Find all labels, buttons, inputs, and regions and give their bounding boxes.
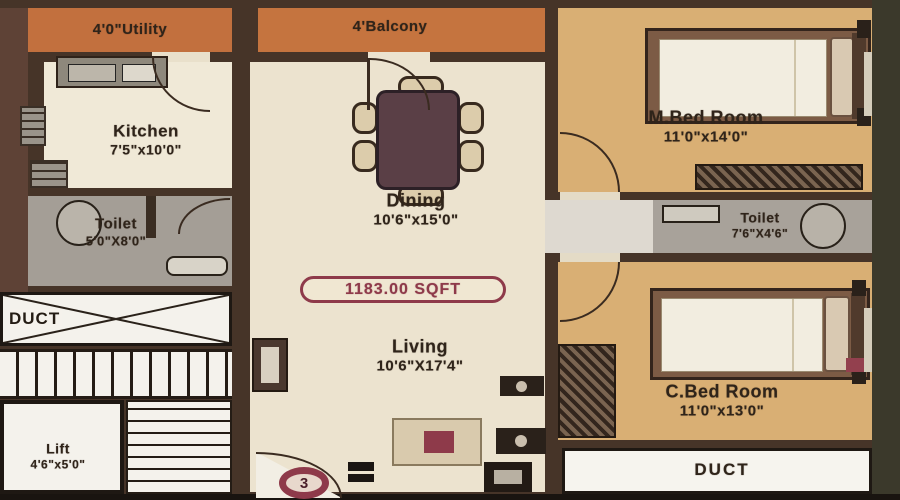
- toilet-left-label: Toilet 5'0"X8'0": [86, 215, 147, 248]
- main-door-mark: [348, 474, 374, 482]
- speaker-cone: [516, 381, 527, 392]
- bed-accent: [846, 358, 864, 372]
- bed-knob: [857, 20, 871, 38]
- duct-bottom-label: DUCT: [694, 460, 749, 480]
- mbed-window-icon: [864, 52, 872, 116]
- area-badge: 1183.00 SQFT: [300, 276, 506, 303]
- speaker-icon: [496, 428, 546, 454]
- mbed-door-gap: [560, 192, 620, 200]
- chair-icon: [458, 140, 484, 172]
- cabinet-face: [261, 347, 279, 383]
- duct-left-label: DUCT: [7, 309, 62, 329]
- cabinet-icon: [252, 338, 288, 392]
- staircase-upper-flight: [0, 349, 232, 399]
- kitchen-label: Kitchen 7'5"x10'0": [110, 122, 182, 159]
- tv-unit-face: [494, 470, 522, 484]
- floor-plan: DUCT: [0, 0, 900, 500]
- mattress: [661, 298, 823, 372]
- dining-label: Dining 10'6"x15'0": [373, 191, 458, 230]
- staircase-lower-flight: [126, 400, 232, 494]
- left-wall: [0, 8, 28, 292]
- chair-icon: [458, 102, 484, 134]
- tv-unit-icon: [484, 462, 532, 492]
- rug-center: [424, 431, 454, 453]
- unit-number-badge: 3: [279, 467, 329, 499]
- kitchen-vent-icon: [30, 160, 68, 188]
- cbed-window-icon: [864, 308, 872, 372]
- duct-left: DUCT: [0, 292, 232, 346]
- lift-label: Lift 4'6"x5'0": [31, 441, 86, 472]
- cbed-door-gap: [560, 253, 620, 262]
- stove-icon: [68, 64, 116, 82]
- rug-icon: [392, 418, 482, 466]
- toilet-counter-icon: [662, 205, 720, 223]
- kitchen-window-icon: [20, 106, 46, 146]
- toilet-divider: [146, 196, 156, 238]
- right-edge-strip: [872, 0, 900, 500]
- cbed-wardrobe-icon: [558, 344, 616, 438]
- bottom-edge-strip: [0, 494, 900, 500]
- speaker-cone: [515, 435, 527, 447]
- chair-icon: [352, 140, 378, 172]
- balcony-label: 4'Balcony: [353, 18, 428, 36]
- mattress-fold: [794, 40, 796, 116]
- mattress-fold: [792, 299, 794, 371]
- wc-icon: [166, 256, 228, 276]
- bed-knob: [852, 280, 866, 296]
- cbed-bed-icon: [650, 288, 870, 380]
- mbed-wardrobe-icon: [695, 164, 863, 190]
- living-label: Living 10'6"X17'4": [377, 337, 464, 376]
- child-bedroom-label: C.Bed Room 11'0"x13'0": [666, 382, 779, 421]
- master-bedroom-label: M.Bed Room 11'0"x14'0": [649, 108, 764, 147]
- toilet-right-label: Toilet 7'6"X4'6": [732, 210, 788, 241]
- speaker-icon: [500, 376, 544, 396]
- mattress: [659, 39, 827, 117]
- main-door-mark: [348, 462, 374, 471]
- washbasin-icon: [800, 203, 846, 249]
- utility-label: 4'0"Utility: [93, 21, 168, 39]
- corridor-passage: [545, 200, 653, 253]
- sink-icon: [122, 64, 156, 82]
- pillow: [830, 37, 854, 117]
